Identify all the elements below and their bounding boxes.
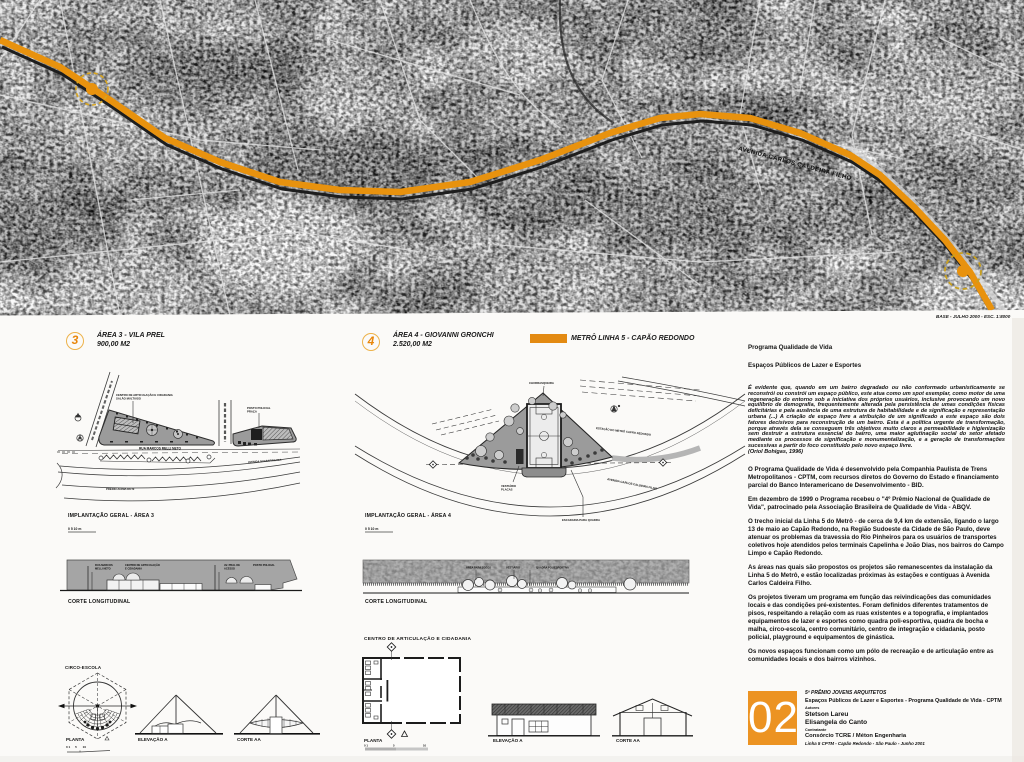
svg-text:0 1 5 10: 0 1 5 10 [66,745,86,749]
svg-text:RUA MARCOS MELLI NETO: RUA MARCOS MELLI NETO [139,447,181,451]
svg-text:SALÃO MULTIUSO: SALÃO MULTIUSO [116,396,142,401]
svg-text:RUA MARCOS: RUA MARCOS [95,563,113,567]
svg-text:CORTE AA: CORTE AA [237,737,262,742]
svg-text:CORTE LONGITUDINAL: CORTE LONGITUDINAL [68,599,131,605]
svg-text:CHURRASQUEIRA: CHURRASQUEIRA [529,381,554,385]
svg-text:PLANTA: PLANTA [66,737,85,742]
svg-text:ESCADARIA PARA QUADRA: ESCADARIA PARA QUADRA [562,518,600,522]
svg-text:MELLI NETO: MELLI NETO [95,566,111,570]
svg-text:0 5 10 m: 0 5 10 m [68,527,81,531]
svg-text:PRÉDIO ACIMA DO N: PRÉDIO ACIMA DO N [106,486,134,491]
svg-text:CORTE AA: CORTE AA [616,738,641,743]
svg-text:ESTAÇÃO DO METRÔ CAPÃO REDONDO: ESTAÇÃO DO METRÔ CAPÃO REDONDO [596,425,652,437]
svg-text:CORTE LONGITUDINAL: CORTE LONGITUDINAL [365,599,428,605]
svg-text:AV. PRAL DE: AV. PRAL DE [224,563,240,567]
svg-text:PLANTA: PLANTA [364,738,383,743]
svg-text:PRAÇA: PRAÇA [247,410,257,414]
svg-text:5: 5 [393,744,395,748]
svg-text:IMPLANTAÇÃO GERAL - ÁREA 3: IMPLANTAÇÃO GERAL - ÁREA 3 [68,512,154,519]
svg-text:QUADRA POLIESPORTIVA: QUADRA POLIESPORTIVA [536,566,569,570]
svg-text:ACESSO: ACESSO [224,566,235,570]
svg-text:ELEVAÇÃO A: ELEVAÇÃO A [138,736,168,742]
svg-text:ELEVAÇÃO A: ELEVAÇÃO A [493,737,523,743]
svg-text:CIRCO-ESCOLA: CIRCO-ESCOLA [65,665,102,670]
svg-text:AVENIDA CARLOS CALDEIRA FILHO: AVENIDA CARLOS CALDEIRA FILHO [607,477,658,491]
svg-text:0 5 10 m: 0 5 10 m [365,527,378,531]
svg-text:PLACAS: PLACAS [501,488,513,492]
svg-text:CENTRO DE ARTICULAÇÃO E CIDADA: CENTRO DE ARTICULAÇÃO E CIDADANIA [364,635,471,642]
svg-text:10: 10 [423,744,427,748]
svg-text:0 1: 0 1 [364,744,368,748]
svg-text:IMPLANTAÇÃO GERAL - ÁREA 4: IMPLANTAÇÃO GERAL - ÁREA 4 [365,512,451,519]
svg-text:E CIDADANIA: E CIDADANIA [125,566,142,570]
svg-text:POSTO POLICIAL: POSTO POLICIAL [253,563,275,567]
svg-text:AVENIDA GUARAPIRANGA: AVENIDA GUARAPIRANGA [248,458,282,464]
